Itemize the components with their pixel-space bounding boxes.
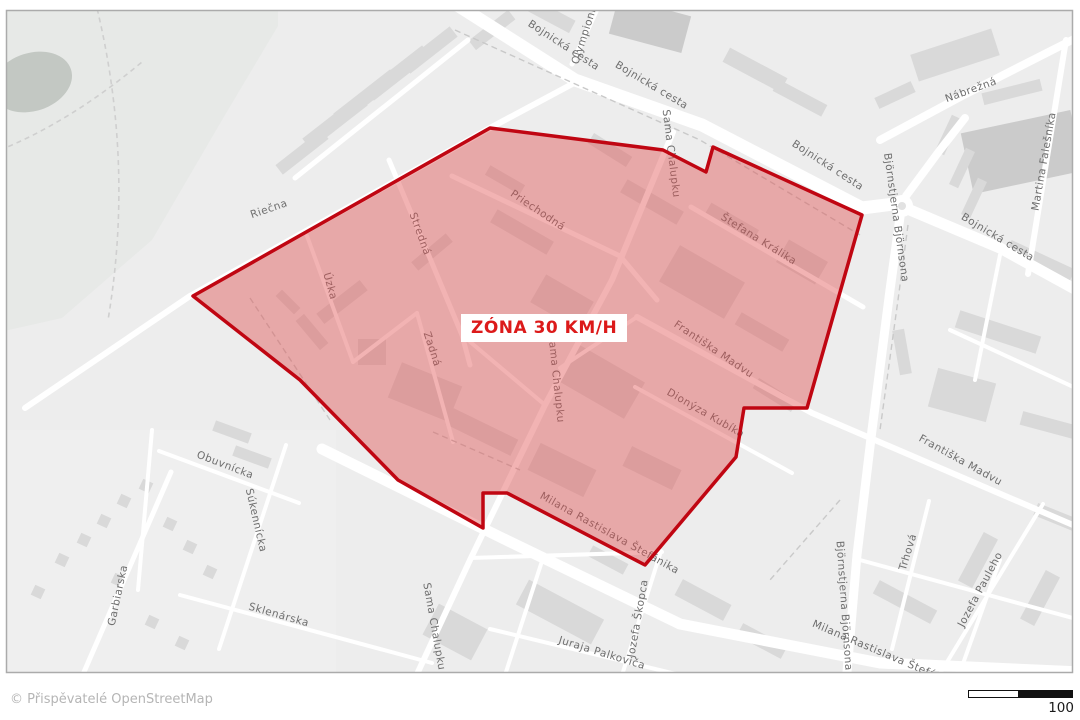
scale-bar	[968, 690, 1073, 698]
map-layers: Bojnická cesta Bojnická cesta Bojnická c…	[0, 0, 1080, 720]
scale-bar-segment-light	[968, 690, 1018, 698]
scale-bar-label: 100	[1044, 700, 1074, 716]
attribution: © Přispěvatelé OpenStreetMap	[10, 692, 213, 707]
residential-area	[6, 430, 336, 673]
scale-bar-segment-dark	[1018, 690, 1073, 698]
zone-label: ZÓNA 30 KM/H	[461, 314, 627, 342]
map-page: Bojnická cesta Bojnická cesta Bojnická c…	[0, 0, 1080, 720]
map-canvas: Bojnická cesta Bojnická cesta Bojnická c…	[0, 0, 1080, 720]
